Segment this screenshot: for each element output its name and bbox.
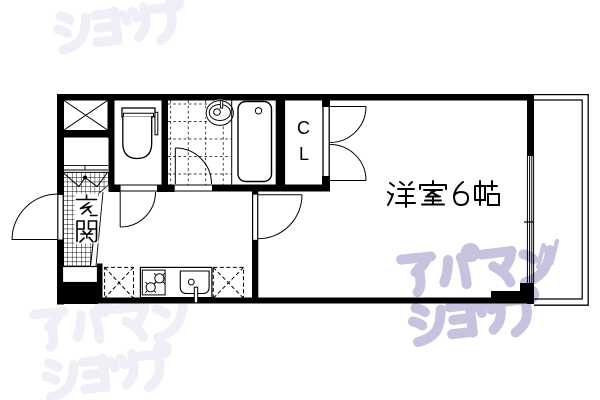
svg-text:L: L <box>299 144 309 164</box>
svg-text:C: C <box>297 118 310 138</box>
